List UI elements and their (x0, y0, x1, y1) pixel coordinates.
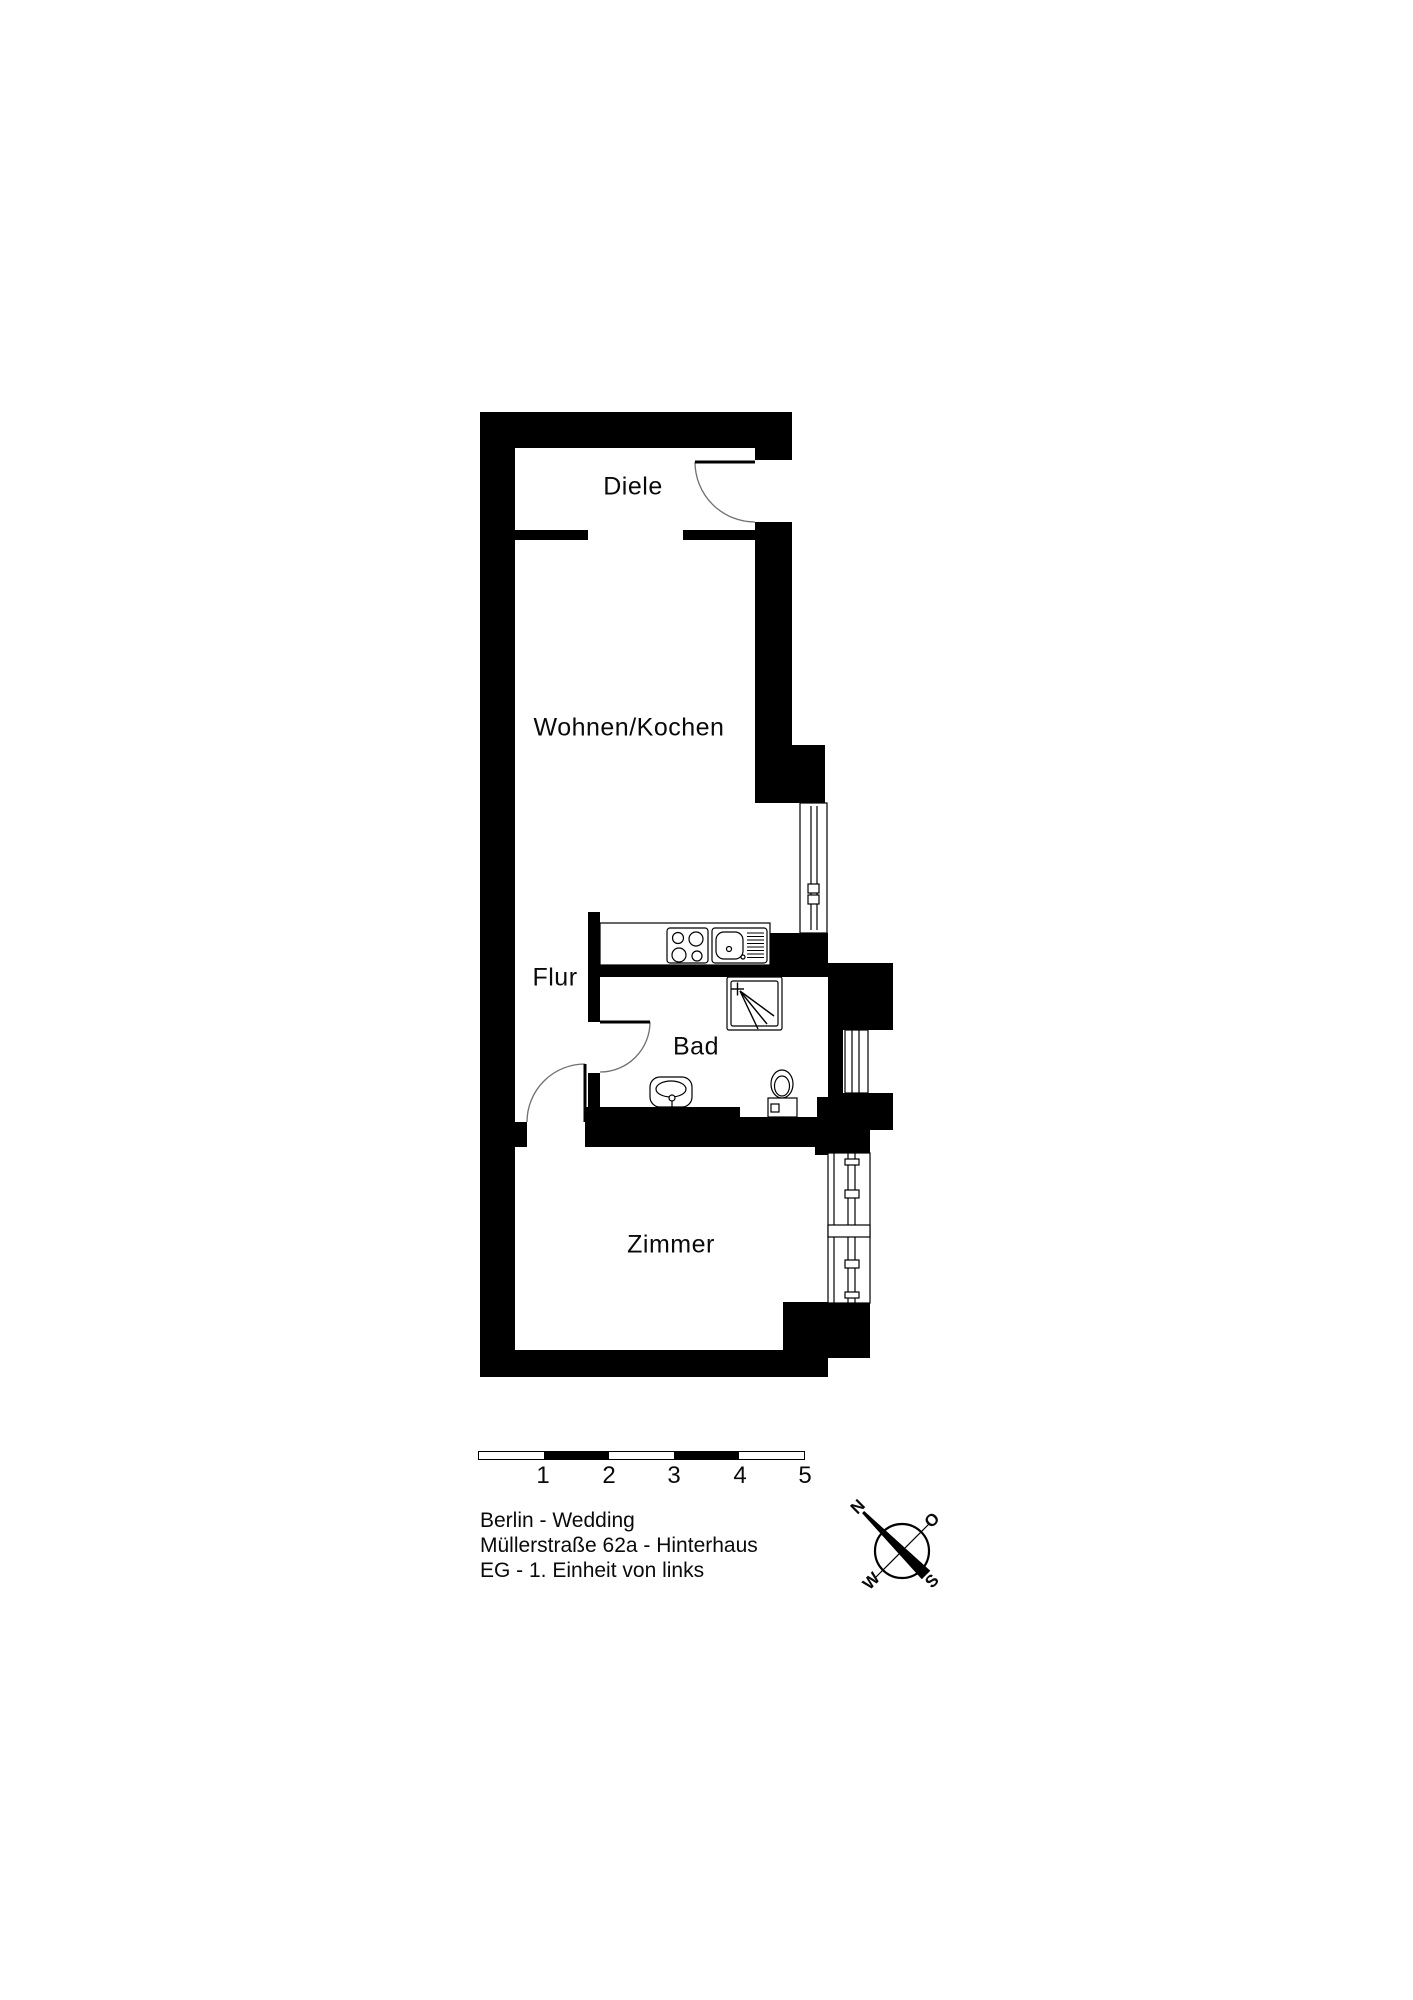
wall-left (480, 412, 515, 1377)
wall-diele-south-right (683, 530, 755, 540)
room-label-zimmer: Zimmer (627, 1231, 715, 1260)
room-label-wohnen-kochen: Wohnen/Kochen (534, 714, 725, 743)
scale-segment (479, 1452, 544, 1459)
stove-icon (667, 928, 708, 963)
wall-zimmer-se-step (783, 1302, 828, 1350)
scale-segment (544, 1452, 609, 1459)
scale-label-1: 1 (536, 1462, 549, 1490)
fixtures (600, 923, 797, 1117)
wall-bad-south-b (740, 1117, 817, 1147)
room-label-bad: Bad (673, 1033, 719, 1062)
wall-zimmer-east-lower (828, 1303, 870, 1358)
wall-diele-south-left (515, 530, 588, 540)
legend-address: Müllerstraße 62a - Hinterhaus (480, 1533, 758, 1558)
legend-city: Berlin - Wedding (480, 1508, 758, 1533)
windows (800, 803, 893, 1303)
wall-top (480, 412, 755, 448)
wall-right-step (755, 745, 825, 803)
shower-icon (727, 977, 782, 1030)
toilet-icon (768, 1070, 797, 1117)
window-wohnen (800, 803, 827, 933)
scale-segment (739, 1452, 804, 1459)
washbasin-icon (650, 1077, 692, 1108)
legend-unit: EG - 1. Einheit von links (480, 1558, 758, 1583)
wall-bad-south-a (585, 1107, 740, 1147)
scale-segment (609, 1452, 674, 1459)
window-bad (843, 1030, 893, 1093)
wall-zimmer-east-upper (815, 1130, 870, 1155)
scale-bar (478, 1451, 805, 1460)
kitchen-sink-icon (712, 928, 767, 963)
room-label-flur: Flur (532, 964, 577, 993)
wall-right-above-entrance (755, 412, 792, 460)
wall-zimmer-north-stub (515, 1122, 527, 1147)
scale-label-3: 3 (667, 1462, 680, 1490)
room-label-diele: Diele (603, 473, 662, 502)
entrance-door (695, 462, 755, 522)
wall-kitchen-bad (588, 965, 828, 977)
wall-right-mid (755, 522, 792, 745)
floorplan-drawing (0, 0, 1413, 2000)
zimmer-door (527, 1064, 585, 1122)
scale-label-2: 2 (602, 1462, 615, 1490)
bad-door (600, 1022, 650, 1072)
scale-label-5: 5 (798, 1462, 811, 1490)
doors (527, 462, 755, 1122)
window-zimmer (828, 1153, 870, 1303)
floorplan-page: Diele Wohnen/Kochen Flur Bad Zimmer 1 2 … (0, 0, 1413, 2000)
wall-zimmer-south (480, 1350, 828, 1377)
scale-segment (674, 1452, 739, 1459)
legend-block: Berlin - Wedding Müllerstraße 62a - Hint… (480, 1508, 758, 1583)
scale-label-4: 4 (733, 1462, 746, 1490)
